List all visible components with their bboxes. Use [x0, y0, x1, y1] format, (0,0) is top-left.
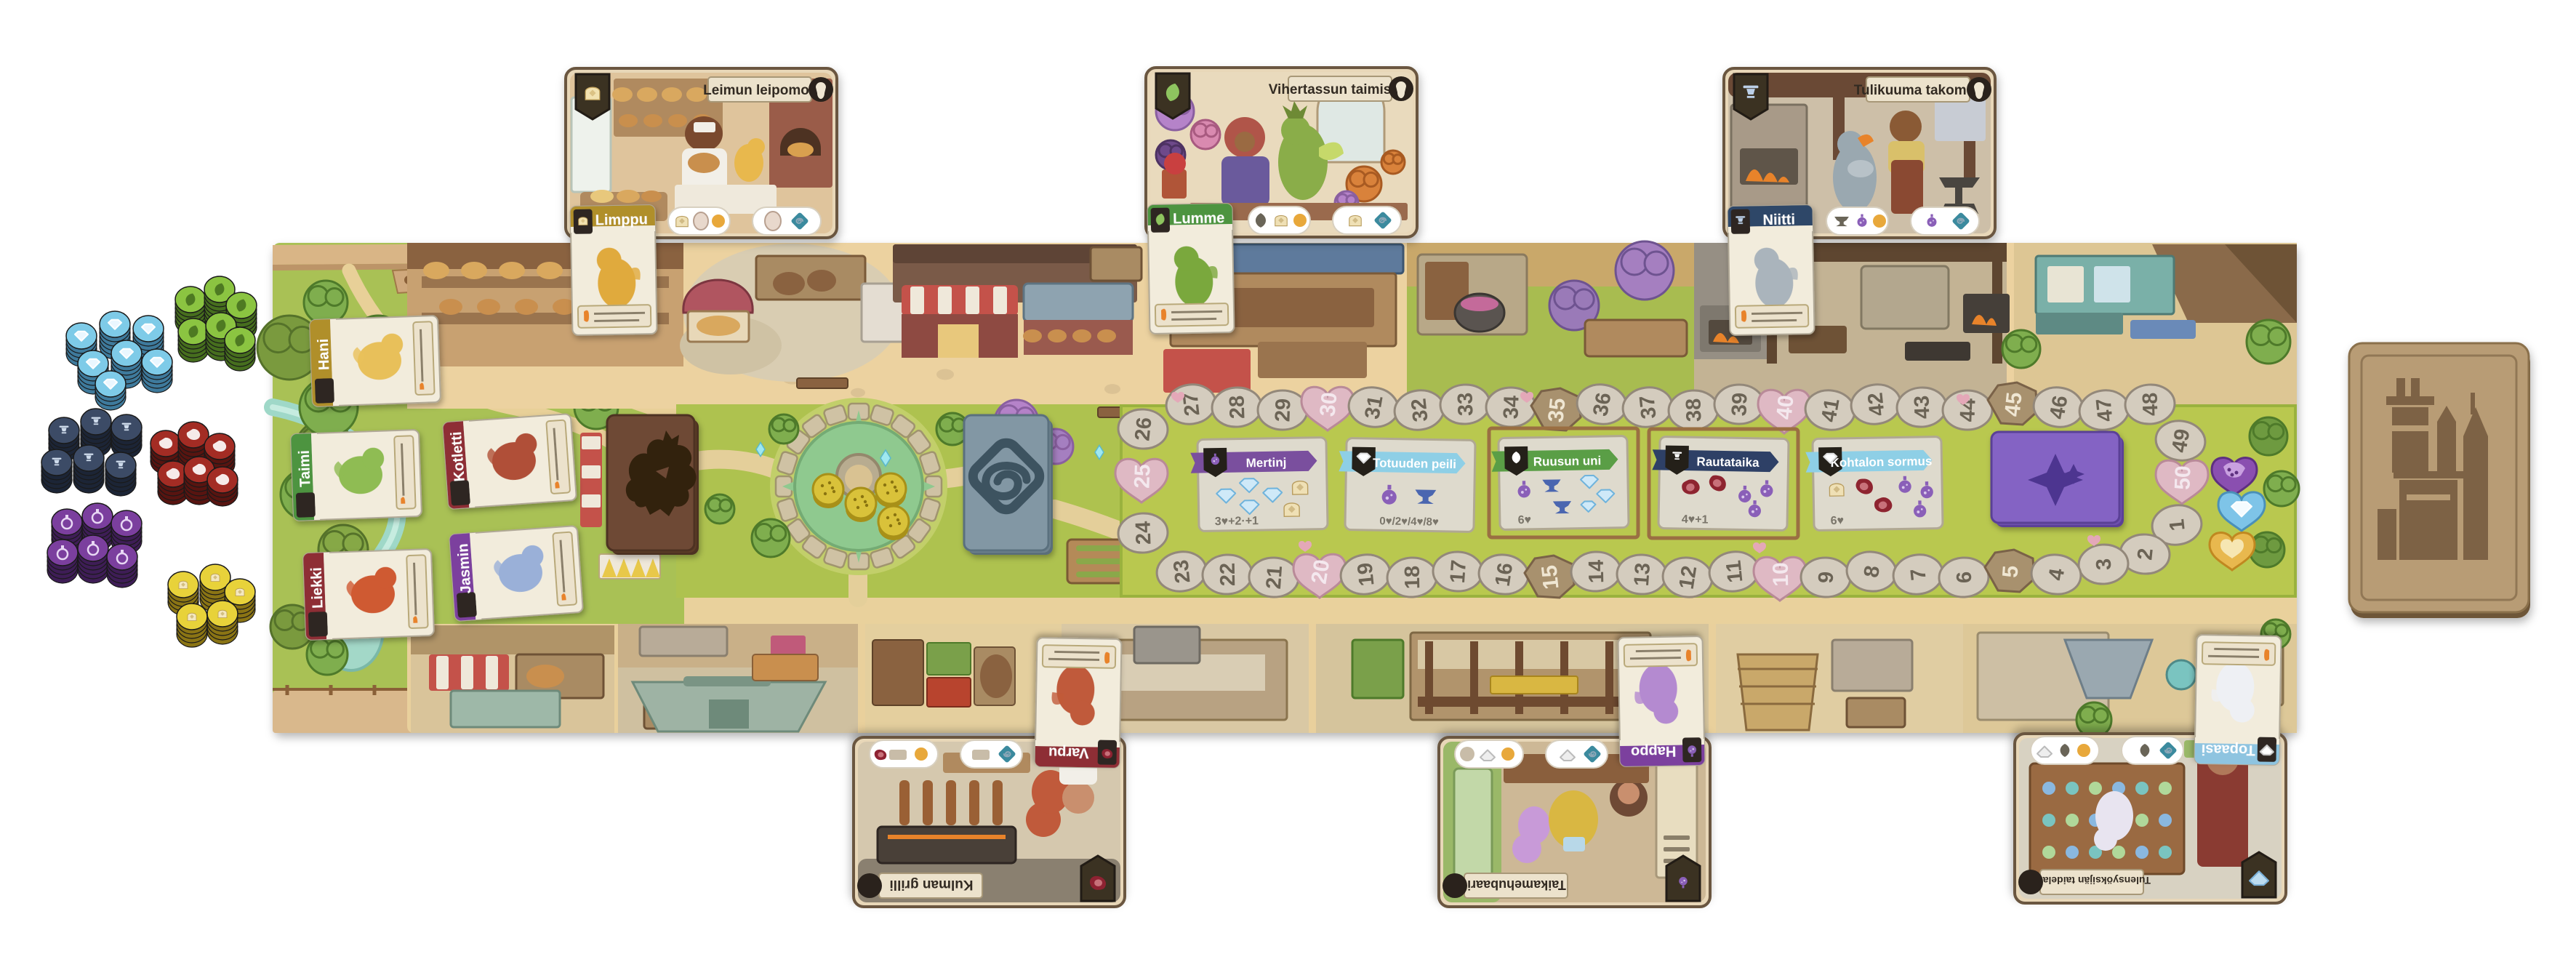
svg-text:2: 2	[2133, 547, 2158, 561]
svg-text:Mertinj: Mertinj	[1245, 455, 1286, 470]
svg-text:1: 1	[2165, 518, 2190, 532]
svg-text:Totuuden peili: Totuuden peili	[1373, 456, 1456, 471]
svg-text:39: 39	[1728, 392, 1752, 416]
svg-text:46: 46	[2045, 394, 2072, 421]
svg-text:6♥: 6♥	[1518, 514, 1532, 526]
svg-text:9: 9	[1814, 571, 1838, 584]
svg-text:3: 3	[2093, 558, 2116, 570]
svg-text:31: 31	[1360, 394, 1387, 421]
svg-text:12: 12	[1675, 564, 1702, 591]
svg-text:4♥+1: 4♥+1	[1682, 513, 1709, 526]
svg-text:23: 23	[1169, 558, 1195, 584]
svg-text:6♥: 6♥	[1831, 515, 1845, 527]
svg-text:15: 15	[1537, 564, 1563, 591]
svg-text:Tulensyöksijän taidelasi: Tulensyöksijän taidelasi	[2034, 875, 2151, 886]
svg-text:38: 38	[1682, 398, 1706, 422]
svg-text:42: 42	[1863, 391, 1889, 417]
svg-text:25: 25	[1130, 464, 1155, 489]
svg-text:34: 34	[1499, 395, 1523, 419]
svg-text:35: 35	[1544, 397, 1570, 424]
svg-text:30: 30	[1315, 391, 1341, 418]
svg-text:50: 50	[2170, 465, 2195, 491]
svg-text:Happo: Happo	[1631, 743, 1677, 760]
svg-text:22: 22	[1216, 563, 1240, 587]
svg-text:26: 26	[1131, 416, 1156, 441]
svg-text:Tulikuuma takomo: Tulikuuma takomo	[1854, 83, 1975, 98]
svg-text:Limppu: Limppu	[595, 212, 649, 228]
svg-text:28: 28	[1225, 395, 1249, 419]
svg-text:33: 33	[1453, 392, 1477, 416]
svg-text:32: 32	[1407, 397, 1432, 422]
svg-text:7: 7	[1906, 567, 1931, 581]
svg-text:16: 16	[1491, 561, 1518, 588]
svg-text:48: 48	[2138, 392, 2162, 416]
svg-text:29: 29	[1271, 398, 1295, 422]
svg-text:Niitti: Niitti	[1762, 212, 1795, 228]
svg-text:Topaasi: Topaasi	[2202, 741, 2255, 758]
svg-text:Vihertassun taimisto: Vihertassun taimisto	[1269, 82, 1405, 97]
svg-text:Ruusun uni: Ruusun uni	[1533, 454, 1602, 469]
svg-text:43: 43	[1910, 395, 1934, 419]
svg-text:6: 6	[1953, 572, 1976, 584]
svg-text:18: 18	[1401, 566, 1425, 590]
svg-text:Liekki: Liekki	[309, 567, 326, 609]
svg-text:49: 49	[2167, 428, 2194, 454]
svg-text:37: 37	[1635, 394, 1661, 420]
svg-text:36: 36	[1589, 391, 1616, 418]
svg-text:13: 13	[1630, 562, 1655, 587]
svg-text:Taimi: Taimi	[297, 450, 314, 488]
svg-text:Rautataika: Rautataika	[1696, 454, 1760, 470]
svg-text:Lumme: Lumme	[1173, 210, 1224, 227]
svg-text:40: 40	[1772, 394, 1798, 421]
svg-text:47: 47	[2092, 397, 2117, 422]
svg-text:19: 19	[1353, 561, 1379, 587]
svg-text:Taikamehubaari: Taikamehubaari	[1467, 878, 1566, 892]
svg-text:Kohtalon sormus: Kohtalon sormus	[1830, 454, 1932, 470]
svg-text:Hani: Hani	[316, 338, 332, 370]
svg-text:10: 10	[1769, 562, 1794, 587]
svg-text:20: 20	[1307, 558, 1335, 585]
svg-text:21: 21	[1262, 565, 1287, 590]
svg-text:24: 24	[1131, 521, 1155, 545]
svg-text:0♥/2♥/4♥/8♥: 0♥/2♥/4♥/8♥	[1379, 515, 1439, 528]
svg-text:5: 5	[1998, 565, 2023, 579]
svg-text:11: 11	[1722, 559, 1747, 584]
svg-text:Kulman grilli: Kulman grilli	[889, 877, 973, 892]
svg-text:17: 17	[1446, 559, 1471, 584]
svg-text:3♥+2·+1: 3♥+2·+1	[1215, 515, 1259, 528]
svg-text:Leimun leipomo: Leimun leipomo	[703, 83, 809, 98]
svg-text:45: 45	[2000, 391, 2026, 418]
svg-text:14: 14	[1585, 560, 1609, 584]
svg-text:41: 41	[1817, 397, 1844, 424]
svg-text:Varpu: Varpu	[1048, 744, 1089, 761]
